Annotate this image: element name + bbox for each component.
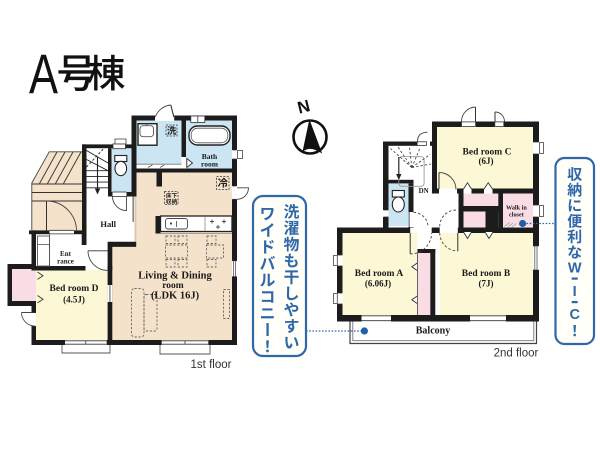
svg-text:(4.5J): (4.5J)	[63, 295, 85, 305]
svg-text:I: I	[573, 284, 577, 300]
svg-text:2nd floor: 2nd floor	[494, 348, 539, 360]
svg-text:A: A	[29, 43, 58, 105]
svg-text:1st floor: 1st floor	[191, 359, 232, 371]
svg-text:room: room	[201, 160, 219, 169]
svg-text:Living & Dining: Living & Dining	[138, 271, 212, 282]
svg-text:(LDK 16J): (LDK 16J)	[151, 291, 200, 302]
svg-text:Balcony: Balcony	[416, 326, 450, 337]
svg-text:closet: closet	[509, 211, 525, 218]
svg-text:W: W	[568, 261, 582, 277]
svg-text:room: room	[162, 281, 184, 291]
svg-text:(6J): (6J)	[479, 156, 494, 166]
svg-text:(6.06J): (6.06J)	[365, 279, 391, 289]
svg-text:Bed room B: Bed room B	[462, 269, 511, 279]
svg-text:Bed room D: Bed room D	[50, 284, 99, 294]
svg-text:Hall: Hall	[100, 219, 116, 229]
svg-text:C: C	[569, 307, 580, 323]
svg-text:rance: rance	[57, 258, 74, 266]
svg-text:Bed room A: Bed room A	[355, 269, 404, 279]
svg-text:DN: DN	[419, 187, 429, 195]
svg-text:(7J): (7J)	[479, 279, 494, 289]
svg-text:N: N	[295, 96, 312, 117]
